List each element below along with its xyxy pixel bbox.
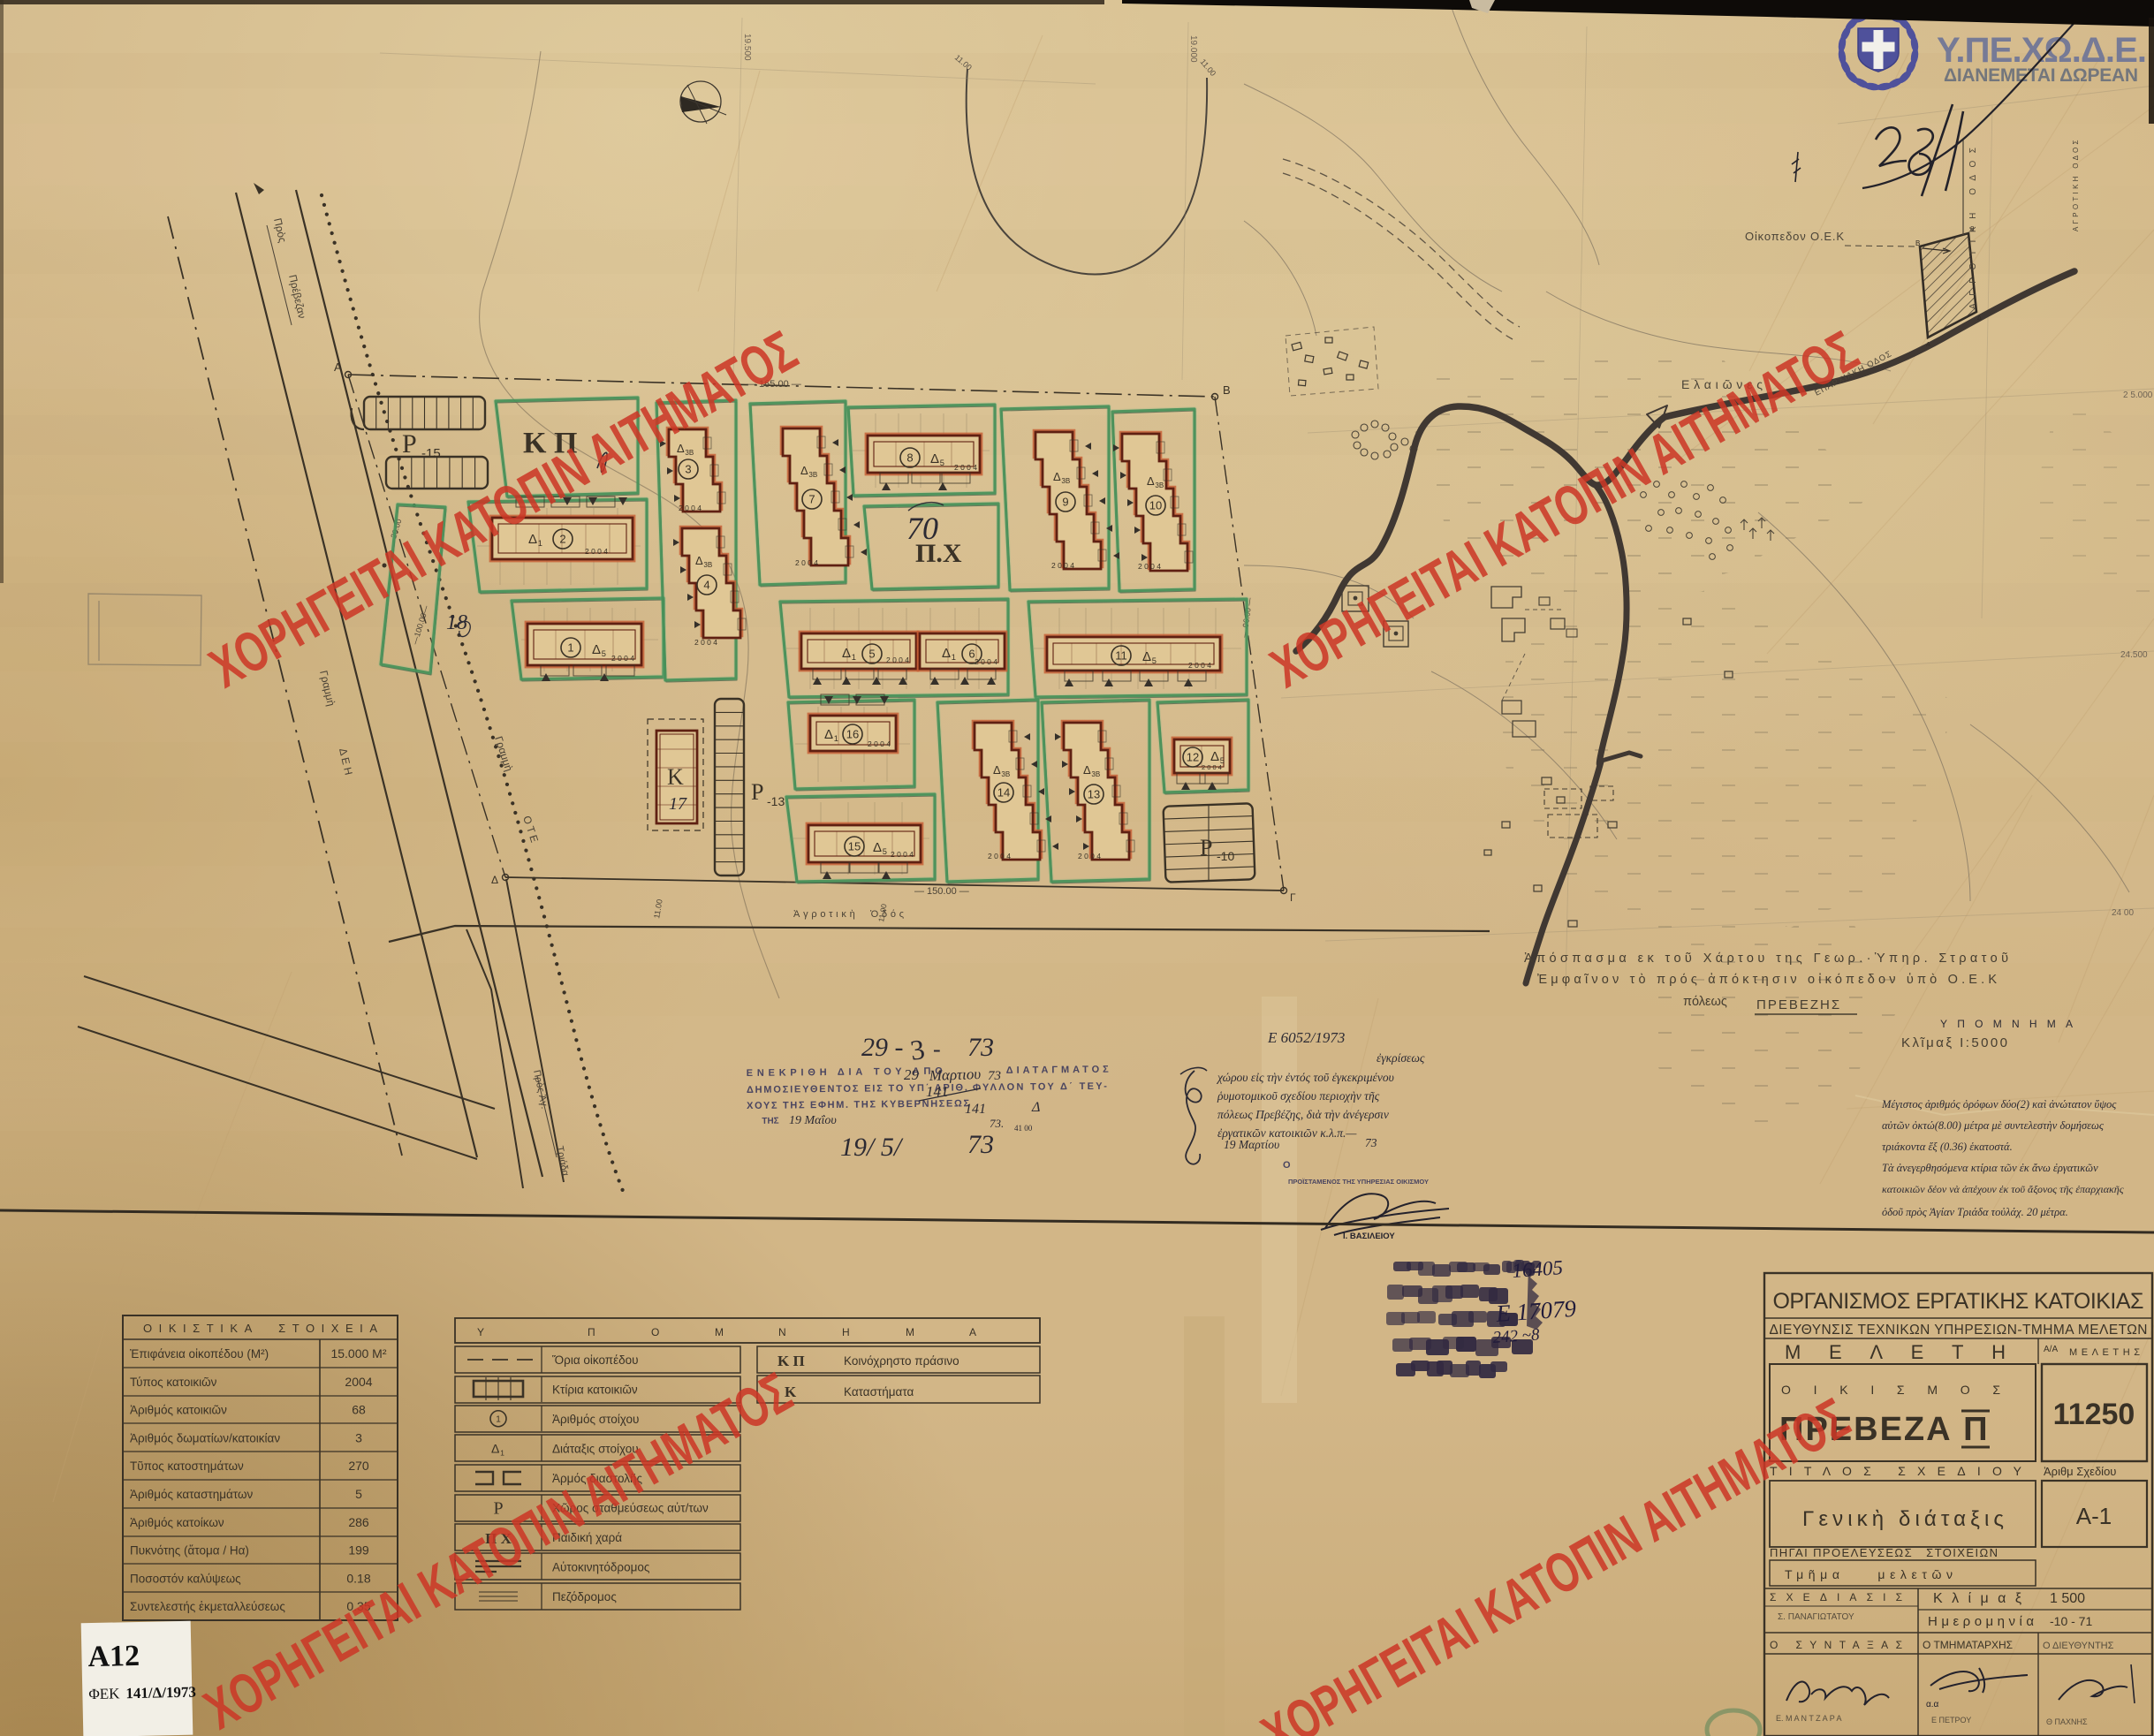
svg-text:Β: Β [1915, 239, 1920, 247]
svg-text:Κοινόχρηστο πράσινο: Κοινόχρηστο πράσινο [844, 1354, 959, 1368]
svg-text:Δ: Δ [1053, 470, 1061, 483]
svg-text:5: 5 [602, 649, 606, 658]
svg-text:Τῦπος κατοστημάτων: Τῦπος κατοστημάτων [130, 1459, 244, 1473]
svg-text:2 0 0 4: 2 0 0 4 [891, 850, 914, 859]
svg-text:ΑΓΡΟΤΙΚΗ ΟΔΟΣ: ΑΓΡΟΤΙΚΗ ΟΔΟΣ [2072, 139, 2080, 231]
svg-text:Ἀριθμός δωματίων/κατοικίαν: Ἀριθμός δωματίων/κατοικίαν [130, 1431, 280, 1444]
svg-text:2 0 0 4: 2 0 0 4 [975, 657, 997, 666]
svg-text:Α-1: Α-1 [2076, 1503, 2112, 1529]
svg-text:ΠΡΕΒΕΖΗΣ: ΠΡΕΒΕΖΗΣ [1756, 997, 1841, 1012]
svg-text:Δ: Δ [592, 642, 601, 657]
svg-text:Ἀριθμός καταστημάτων: Ἀριθμός καταστημάτων [130, 1488, 254, 1501]
svg-text:Ρ: Ρ [1200, 835, 1212, 860]
svg-text:199: 199 [348, 1543, 369, 1558]
svg-text:Α12: Α12 [87, 1640, 140, 1673]
svg-text:270: 270 [348, 1459, 369, 1473]
svg-text:3: 3 [685, 463, 691, 476]
svg-text:2 0 0 4: 2 0 0 4 [795, 558, 818, 567]
svg-text:14: 14 [997, 786, 1010, 800]
svg-text:Ἀριθμός κατοικιῶν: Ἀριθμός κατοικιῶν [130, 1404, 227, 1417]
svg-text:Β: Β [1223, 383, 1231, 397]
svg-text:73: 73 [988, 1069, 1001, 1083]
svg-text:Ε. Μ Α Ν Τ Ζ Α Ρ Α: Ε. Μ Α Ν Τ Ζ Α Ρ Α [1776, 1714, 1842, 1723]
svg-text:Πεζόδρομος: Πεζόδρομος [552, 1590, 617, 1603]
svg-text:16: 16 [846, 728, 859, 741]
svg-text:ΠΡΟΪΣΤΑΜΕΝΟΣ ΤΗΣ ΥΠΗΡΕΣΙΑΣ ΟΙΚ: ΠΡΟΪΣΤΑΜΕΝΟΣ ΤΗΣ ΥΠΗΡΕΣΙΑΣ ΟΙΚΙΣΜΟΥ [1288, 1178, 1429, 1186]
svg-text:Δ: Δ [1210, 749, 1219, 764]
svg-text:Δ: Δ [1977, 315, 1982, 322]
svg-text:0.18: 0.18 [346, 1571, 370, 1585]
svg-text:Ε ΠΕΤΡΟΥ: Ε ΠΕΤΡΟΥ [1931, 1716, 1971, 1725]
svg-text:2 0 0 4: 2 0 0 4 [868, 739, 891, 748]
svg-text:Ο: Ο [651, 1326, 659, 1338]
svg-text:2 0 0 4: 2 0 0 4 [1138, 562, 1161, 571]
svg-text:Δ: Δ [491, 1441, 499, 1455]
svg-text:3: 3 [355, 1430, 362, 1444]
svg-text:Δ: Δ [528, 532, 537, 547]
svg-text:Κτίρια κατοικιῶν: Κτίρια κατοικιῶν [552, 1383, 638, 1397]
svg-text:2 0 0 4: 2 0 0 4 [694, 638, 717, 647]
svg-text:1: 1 [500, 1448, 504, 1457]
svg-text:41 00: 41 00 [1014, 1124, 1033, 1133]
svg-text:Τὰ ἀνεγερθησόμενα κτίρια τῶν ἐ: Τὰ ἀνεγερθησόμενα κτίρια τῶν ἐκ ἄνω ἐργα… [1882, 1162, 2098, 1174]
svg-text:29: 29 [904, 1066, 920, 1083]
svg-text:13: 13 [1088, 788, 1100, 801]
svg-text:3Β: 3Β [808, 471, 817, 479]
svg-text:1: 1 [852, 653, 856, 662]
svg-text:73: 73 [967, 1033, 994, 1062]
svg-text:2 0 0 4: 2 0 0 4 [1051, 561, 1074, 570]
svg-text:19 Μαρτίου: 19 Μαρτίου [1224, 1138, 1279, 1151]
svg-text:7: 7 [808, 493, 815, 506]
svg-text:1: 1 [952, 653, 956, 662]
svg-text:— 150.00 —: — 150.00 — [914, 886, 969, 897]
svg-text:2 0 0 4: 2 0 0 4 [1078, 852, 1101, 860]
svg-text:Δ: Δ [491, 874, 498, 886]
svg-text:2: 2 [559, 533, 565, 546]
svg-text:Ρ: Ρ [751, 779, 763, 805]
svg-text:κατοικιῶν δέον νὰ ἀπέχουν ἐκ τ: κατοικιῶν δέον νὰ ἀπέχουν ἐκ τοῦ ἄξονος … [1882, 1183, 2124, 1195]
svg-text:24.500: 24.500 [2120, 650, 2148, 660]
svg-text:Δ: Δ [1142, 649, 1151, 664]
svg-text:3Β: 3Β [685, 449, 694, 457]
svg-text:Γ: Γ [1290, 891, 1296, 904]
svg-text:Ποσοστόν καλύψεως: Ποσοστόν καλύψεως [130, 1572, 241, 1585]
svg-text:πόλεως: πόλεως [1683, 995, 1727, 1009]
svg-text:Δ: Δ [1083, 763, 1091, 777]
svg-text:16405: 16405 [1512, 1256, 1564, 1282]
svg-text:11: 11 [1115, 649, 1127, 663]
svg-text:Τύπος κατοικιῶν: Τύπος κατοικιῶν [130, 1376, 217, 1389]
svg-text:ΣΧΕΔΙΑΣΙΣ: ΣΧΕΔΙΑΣΙΣ [1770, 1591, 1902, 1603]
svg-text:12: 12 [1187, 751, 1199, 764]
svg-text:Μ: Μ [715, 1326, 724, 1338]
svg-text:Υ.ΠΕ.ΧΩ.Δ.Ε.: Υ.ΠΕ.ΧΩ.Δ.Ε. [1937, 31, 2147, 70]
svg-text:Δ: Δ [1147, 474, 1155, 488]
svg-text:ἐγκρίσεως: ἐγκρίσεως [1377, 1051, 1425, 1065]
svg-text:Α: Α [1926, 342, 1930, 348]
svg-text:19 Μαΐου: 19 Μαΐου [789, 1114, 837, 1127]
svg-text:Ε 17079: Ε 17079 [1494, 1295, 1577, 1327]
svg-text:Α: Α [334, 360, 342, 374]
svg-text:3Β: 3Β [1155, 481, 1164, 489]
svg-text:-10 - 71: -10 - 71 [2050, 1614, 2092, 1628]
svg-text:Ι. ΒΑΣΙΛΕΙΟΥ: Ι. ΒΑΣΙΛΕΙΟΥ [1343, 1232, 1395, 1241]
svg-text:3Β: 3Β [1061, 477, 1070, 485]
svg-text:2 0 0 4: 2 0 0 4 [585, 547, 608, 556]
svg-text:17: 17 [669, 794, 687, 814]
svg-text:ὁδοῦ πρὸς Ἁγίαν Τριάδα τοὐλάχ.: ὁδοῦ πρὸς Ἁγίαν Τριάδα τοὐλάχ. 20 μέτρα. [1882, 1206, 2068, 1218]
svg-text:ῥυμοτομικοῦ σχεδίου περιοχὴν τ: ῥυμοτομικοῦ σχεδίου περιοχὴν τῆς [1217, 1089, 1380, 1103]
svg-text:Δ: Δ [842, 646, 851, 661]
svg-text:Η: Η [842, 1326, 850, 1338]
svg-text:Συντελεστής ἑκμεταλλεύσεως: Συντελεστής ἑκμεταλλεύσεως [130, 1600, 285, 1613]
svg-text:3Β: 3Β [1001, 770, 1010, 778]
svg-text:Κ: Κ [667, 764, 684, 790]
svg-text:24 00: 24 00 [2112, 908, 2134, 918]
svg-text:19/ 5/: 19/ 5/ [840, 1133, 904, 1162]
svg-text:15.000 Μ²: 15.000 Μ² [330, 1346, 386, 1361]
svg-text:Α: Α [969, 1326, 976, 1338]
svg-text:Κ Π: Κ Π [777, 1353, 805, 1369]
svg-text:ΦΕΚ: ΦΕΚ [88, 1685, 120, 1702]
svg-text:11250: 11250 [2053, 1398, 2135, 1431]
svg-text:-13: -13 [767, 794, 785, 808]
svg-text:-: - [933, 1036, 941, 1062]
svg-text:ΠΗΓΑΙ ΠΡΟΕΛΕΥΣΕΩΣ ΣΤΟΙΧΕΙΩΝ: ΠΗΓΑΙ ΠΡΟΕΛΕΥΣΕΩΣ ΣΤΟΙΧΕΙΩΝ [1770, 1546, 1998, 1559]
svg-text:-10: -10 [1217, 849, 1234, 863]
svg-text:Μέγιστος ἀριθμός ὀρόφων δύο(2): Μέγιστος ἀριθμός ὀρόφων δύο(2) καὶ ἀνώτα… [1881, 1098, 2117, 1111]
svg-text:2 0 0 4: 2 0 0 4 [611, 654, 634, 663]
svg-text:Πυκνότης (ἄτομα / Ηα): Πυκνότης (ἄτομα / Ηα) [130, 1544, 249, 1558]
svg-text:ΟΡΓΑΝΙΣΜΟΣ ΕΡΓΑΤΙΚΗΣ ΚΑΤΟΙΚΙΑΣ: ΟΡΓΑΝΙΣΜΟΣ ΕΡΓΑΤΙΚΗΣ ΚΑΤΟΙΚΙΑΣ [1773, 1289, 2144, 1314]
svg-text:Υ: Υ [477, 1326, 484, 1338]
svg-text:73: 73 [1365, 1136, 1377, 1149]
svg-text:Καταστήματα: Καταστήματα [844, 1385, 914, 1399]
svg-text:2 0 0 4: 2 0 0 4 [954, 463, 977, 472]
svg-text:18: 18 [446, 611, 467, 634]
svg-text:Δ: Δ [942, 646, 951, 661]
svg-text:Γενικὴ διάταξις: Γενικὴ διάταξις [1802, 1507, 2004, 1531]
svg-text:Δ: Δ [930, 451, 939, 466]
svg-text:2004: 2004 [345, 1375, 372, 1389]
svg-text:Αὐτοκινητόδρομος: Αὐτοκινητόδρομος [552, 1561, 650, 1574]
svg-text:α.α: α.α [1926, 1700, 1939, 1709]
svg-text:πόλεως Πρεβέζης, διὰ τὴν ἀνέγε: πόλεως Πρεβέζης, διὰ τὴν ἀνέγερσιν [1217, 1108, 1389, 1121]
svg-text:Θ ΠΑΧΝΗΣ: Θ ΠΑΧΝΗΣ [2046, 1717, 2088, 1726]
svg-text:1: 1 [567, 641, 573, 655]
svg-text:141/Δ/1973: 141/Δ/1973 [125, 1684, 196, 1702]
svg-text:2 0 0 4: 2 0 0 4 [988, 852, 1011, 860]
svg-text:Ἀριθμός κατοίκων: Ἀριθμός κατοίκων [130, 1516, 224, 1529]
svg-text:4: 4 [703, 579, 709, 592]
svg-text:73: 73 [967, 1130, 994, 1159]
svg-text:Ο ΔΙΕΥΘΥΝΤΗΣ: Ο ΔΙΕΥΘΥΝΤΗΣ [2043, 1641, 2114, 1651]
svg-text:Σ. ΠΑΝΑΓΙΩΤΑΤΟΥ: Σ. ΠΑΝΑΓΙΩΤΑΤΟΥ [1778, 1612, 1854, 1622]
svg-text:2 0 0 4: 2 0 0 4 [886, 656, 909, 664]
svg-text:2 0 0 4: 2 0 0 4 [1188, 661, 1211, 670]
svg-text:ΔΙΕΥΘΥΝΣΙΣ ΤΕΧΝΙΚΩΝ ΥΠΗΡΕΣΙΩΝ-: ΔΙΕΥΘΥΝΣΙΣ ΤΕΧΝΙΚΩΝ ΥΠΗΡΕΣΙΩΝ-ΤΜΗΜΑ ΜΕΛΕ… [1770, 1323, 2148, 1338]
svg-text:9: 9 [1062, 496, 1068, 509]
svg-text:19.000: 19.000 [1188, 35, 1198, 63]
svg-text:Ν: Ν [778, 1326, 786, 1338]
svg-text:2 5.000: 2 5.000 [2123, 390, 2153, 400]
svg-text:Μ: Μ [906, 1326, 914, 1338]
svg-text:141: 141 [965, 1102, 986, 1117]
svg-text:68: 68 [352, 1403, 366, 1417]
svg-text:Α/Α: Α/Α [2044, 1345, 2058, 1354]
svg-text:Δ: Δ [993, 763, 1001, 777]
svg-text:15: 15 [848, 840, 861, 853]
svg-text:Π: Π [588, 1326, 595, 1338]
svg-text:8: 8 [906, 451, 913, 465]
svg-text:Ἀριθμός στοίχου: Ἀριθμός στοίχου [552, 1413, 639, 1426]
svg-text:τριάκοντα ἕξ (0.36) ἑκατοστά.: τριάκοντα ἕξ (0.36) ἑκατοστά. [1882, 1141, 2013, 1153]
svg-text:19.500: 19.500 [742, 34, 752, 61]
svg-text:2 0 0 4: 2 0 0 4 [679, 504, 702, 512]
svg-text:73.: 73. [990, 1117, 1004, 1130]
svg-text:Ο: Ο [1283, 1160, 1291, 1171]
svg-text:29 -: 29 - [861, 1033, 904, 1062]
svg-text:5: 5 [868, 648, 875, 661]
svg-text:242 ~8: 242 ~8 [1492, 1325, 1541, 1347]
svg-text:70: 70 [906, 511, 938, 546]
svg-text:Μαρτιου: Μαρτιου [928, 1065, 981, 1084]
svg-text:Δ: Δ [695, 554, 703, 567]
svg-text:Δ: Δ [824, 727, 833, 742]
svg-text:5: 5 [940, 459, 944, 467]
svg-text:ΔΙΑΝΕΜΕΤΑΙ ΔΩΡΕΑΝ: ΔΙΑΝΕΜΕΤΑΙ ΔΩΡΕΑΝ [1944, 65, 2138, 86]
svg-text:2 0 0 4: 2 0 0 4 [1202, 763, 1222, 771]
svg-text:10: 10 [1149, 499, 1162, 512]
svg-text:Ο ΤΜΗΜΑΤΑΡΧΗΣ: Ο ΤΜΗΜΑΤΑΡΧΗΣ [1923, 1639, 2013, 1651]
svg-text:3Β: 3Β [703, 561, 712, 569]
svg-text:3Β: 3Β [1091, 770, 1100, 778]
svg-text:5: 5 [1152, 656, 1157, 665]
svg-text:Δ: Δ [800, 464, 808, 477]
svg-text:Δ: Δ [1031, 1100, 1040, 1115]
svg-text:Ἐπιφάνεια οἰκοπέδου (Μ²): Ἐπιφάνεια οἰκοπέδου (Μ²) [130, 1347, 269, 1361]
svg-text:5: 5 [883, 847, 887, 856]
svg-text:5: 5 [355, 1487, 362, 1501]
svg-text:χώρου εἰς τὴν ἐντός τοῦ ἐγκεκρ: χώρου εἰς τὴν ἐντός τοῦ ἐγκεκριμένου [1216, 1071, 1394, 1084]
svg-text:αὐτῶν ὀκτώ(8.00) μέτρα μὲ συντ: αὐτῶν ὀκτώ(8.00) μέτρα μὲ συντελεστὴν δο… [1882, 1119, 2105, 1132]
svg-text:1 500: 1 500 [2050, 1591, 2085, 1606]
svg-text:Ὅρια οἰκοπέδου: Ὅρια οἰκοπέδου [552, 1353, 639, 1367]
svg-text:Ε 6052/1973: Ε 6052/1973 [1267, 1029, 1345, 1046]
svg-text:Ἀριθμ Σχεδίου: Ἀριθμ Σχεδίου [2044, 1465, 2116, 1478]
svg-text:Ρ: Ρ [402, 429, 417, 459]
svg-text:-15: -15 [421, 446, 441, 461]
svg-text:Δ: Δ [873, 840, 882, 855]
svg-text:1: 1 [538, 539, 542, 548]
svg-text:1: 1 [496, 1414, 501, 1424]
svg-text:286: 286 [348, 1515, 369, 1529]
svg-text:ΤΗΣ: ΤΗΣ [762, 1117, 778, 1126]
svg-text:1: 1 [834, 734, 838, 743]
svg-text:Κλῖμαξ Ι:5000: Κλῖμαξ Ι:5000 [1901, 1035, 2007, 1050]
svg-text:Οἰκοπεδον Ο.Ε.Κ: Οἰκοπεδον Ο.Ε.Κ [1745, 230, 1844, 243]
